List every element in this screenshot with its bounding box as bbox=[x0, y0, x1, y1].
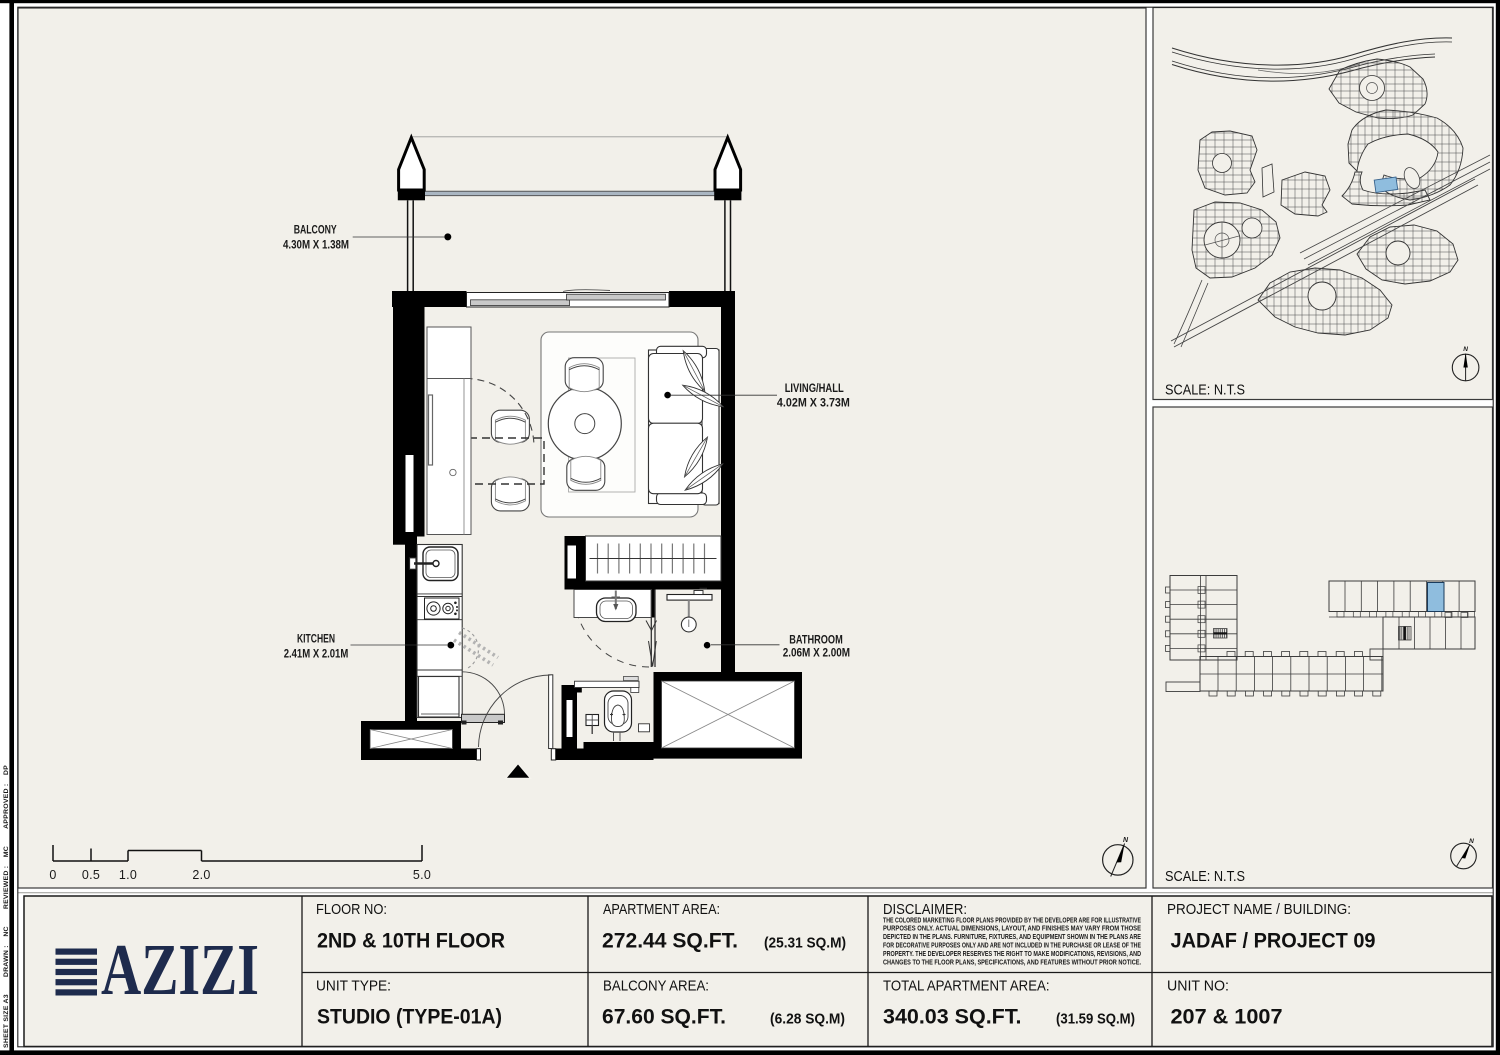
svg-text:SCALE: N.T.S: SCALE: N.T.S bbox=[1165, 383, 1245, 399]
svg-text:SCALE: N.T.S: SCALE: N.T.S bbox=[1165, 869, 1245, 885]
svg-text:1.0: 1.0 bbox=[119, 868, 137, 882]
svg-text:SHEET SIZE A3 DRAWN :: SHEET SIZE A3 DRAWN : NC REVIEWED : MC A… bbox=[3, 765, 10, 1048]
svg-text:AZIZI: AZIZI bbox=[101, 929, 259, 1010]
svg-text:FOR DECORATIVE PURPOSES ONLY A: FOR DECORATIVE PURPOSES ONLY AND ARE NOT… bbox=[883, 942, 1141, 950]
svg-text:UNIT TYPE:: UNIT TYPE: bbox=[316, 979, 391, 995]
svg-text:207 & 1007: 207 & 1007 bbox=[1171, 1005, 1283, 1029]
svg-text:2ND & 10TH FLOOR: 2ND & 10TH FLOOR bbox=[317, 929, 505, 953]
svg-text:(6.28 SQ.M): (6.28 SQ.M) bbox=[770, 1012, 845, 1028]
svg-text:5.0: 5.0 bbox=[413, 868, 431, 882]
svg-text:0.5: 0.5 bbox=[82, 868, 100, 882]
svg-text:TOTAL APARTMENT AREA:: TOTAL APARTMENT AREA: bbox=[883, 979, 1050, 995]
svg-text:UNIT NO:: UNIT NO: bbox=[1167, 979, 1229, 995]
svg-text:4.02M X 3.73M: 4.02M X 3.73M bbox=[777, 396, 850, 410]
svg-text:BATHROOM: BATHROOM bbox=[789, 632, 843, 646]
svg-text:2.06M X 2.00M: 2.06M X 2.00M bbox=[783, 646, 850, 660]
svg-text:(31.59 SQ.M): (31.59 SQ.M) bbox=[1056, 1012, 1135, 1028]
svg-text:THE COLORED MARKETING FLOOR PL: THE COLORED MARKETING FLOOR PLANS PROVID… bbox=[883, 916, 1141, 924]
svg-text:4.30M X 1.38M: 4.30M X 1.38M bbox=[283, 238, 349, 252]
svg-text:JADAF / PROJECT 09: JADAF / PROJECT 09 bbox=[1171, 929, 1376, 953]
svg-text:2.41M X 2.01M: 2.41M X 2.01M bbox=[284, 646, 349, 660]
svg-text:BALCONY AREA:: BALCONY AREA: bbox=[603, 979, 709, 995]
svg-text:0: 0 bbox=[49, 868, 56, 882]
svg-text:KITCHEN: KITCHEN bbox=[297, 632, 335, 646]
svg-text:PROJECT NAME / BUILDING:: PROJECT NAME / BUILDING: bbox=[1167, 902, 1351, 918]
svg-text:2.0: 2.0 bbox=[192, 868, 210, 882]
svg-text:CHANGES TO THE FLOOR PLANS, SP: CHANGES TO THE FLOOR PLANS, SPECIFICATIO… bbox=[883, 958, 1141, 966]
svg-text:DEPICTED IN THE PLANS. FURNITU: DEPICTED IN THE PLANS. FURNITURE, FIXTUR… bbox=[883, 933, 1141, 941]
svg-text:STUDIO (TYPE-01A): STUDIO (TYPE-01A) bbox=[317, 1005, 502, 1029]
svg-text:340.03 SQ.FT.: 340.03 SQ.FT. bbox=[883, 1005, 1022, 1029]
svg-text:LIVING/HALL: LIVING/HALL bbox=[785, 381, 844, 395]
svg-text:PURPOSES ONLY. ACTUAL DIMENSIO: PURPOSES ONLY. ACTUAL DIMENSIONS, LAYOUT… bbox=[883, 925, 1141, 933]
svg-text:272.44 SQ.FT.: 272.44 SQ.FT. bbox=[602, 929, 738, 953]
svg-text:(25.31 SQ.M): (25.31 SQ.M) bbox=[764, 936, 846, 952]
svg-text:N: N bbox=[1469, 838, 1474, 845]
svg-text:67.60 SQ.FT.: 67.60 SQ.FT. bbox=[602, 1005, 726, 1029]
svg-text:FLOOR NO:: FLOOR NO: bbox=[316, 902, 387, 918]
svg-text:BALCONY: BALCONY bbox=[294, 223, 337, 237]
svg-text:N: N bbox=[1463, 346, 1468, 353]
svg-text:APARTMENT AREA:: APARTMENT AREA: bbox=[603, 902, 720, 918]
svg-text:PROPERTY. THE DEVELOPER RESERV: PROPERTY. THE DEVELOPER RESERVES THE RIG… bbox=[883, 950, 1141, 958]
